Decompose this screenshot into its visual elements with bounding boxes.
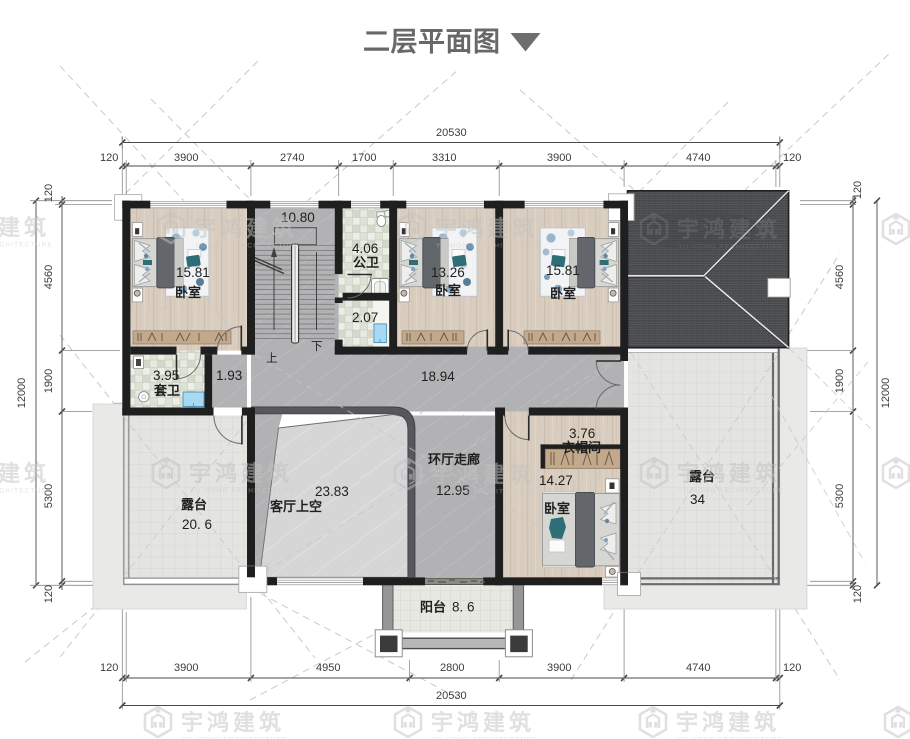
svg-text:2800: 2800 (440, 662, 464, 674)
svg-text:卧室: 卧室 (544, 501, 570, 516)
svg-text:8. 6: 8. 6 (452, 600, 475, 615)
svg-text:20530: 20530 (436, 127, 467, 139)
svg-text:3900: 3900 (174, 662, 198, 674)
svg-text:3900: 3900 (547, 152, 571, 164)
svg-text:露台: 露台 (181, 497, 207, 512)
svg-text:120: 120 (100, 152, 118, 164)
svg-text:2.07: 2.07 (352, 310, 378, 325)
svg-text:120: 120 (852, 181, 864, 199)
svg-text:公卫: 公卫 (353, 255, 379, 270)
svg-text:14.27: 14.27 (539, 473, 573, 488)
svg-text:卧室: 卧室 (175, 285, 201, 300)
svg-text:套卫: 套卫 (153, 383, 180, 398)
svg-text:4560: 4560 (43, 265, 55, 289)
svg-text:12000: 12000 (880, 378, 892, 409)
svg-text:15.81: 15.81 (546, 263, 580, 278)
svg-text:卧室: 卧室 (435, 283, 461, 298)
svg-text:1900: 1900 (43, 369, 55, 393)
svg-text:120: 120 (100, 662, 118, 674)
svg-text:12000: 12000 (16, 378, 28, 409)
svg-text:1.93: 1.93 (216, 368, 242, 383)
svg-text:120: 120 (783, 662, 801, 674)
svg-text:15.81: 15.81 (176, 265, 210, 280)
svg-text:4950: 4950 (316, 662, 340, 674)
svg-text:13.26: 13.26 (431, 265, 465, 280)
svg-text:1700: 1700 (352, 152, 376, 164)
svg-text:4.06: 4.06 (352, 241, 378, 256)
svg-text:5300: 5300 (834, 484, 846, 508)
svg-text:2740: 2740 (280, 152, 304, 164)
svg-text:20. 6: 20. 6 (182, 517, 212, 532)
svg-text:20530: 20530 (436, 690, 467, 702)
svg-text:二层平面图: 二层平面图 (363, 27, 501, 57)
svg-text:客厅上空: 客厅上空 (270, 499, 322, 514)
svg-text:3900: 3900 (174, 152, 198, 164)
svg-text:120: 120 (783, 152, 801, 164)
svg-text:衣帽间: 衣帽间 (562, 440, 601, 455)
svg-text:3310: 3310 (432, 152, 456, 164)
svg-text:4740: 4740 (686, 152, 710, 164)
svg-text:4560: 4560 (834, 265, 846, 289)
svg-text:4740: 4740 (686, 662, 710, 674)
svg-text:3900: 3900 (547, 662, 571, 674)
svg-text:120: 120 (852, 585, 864, 603)
svg-text:卧室: 卧室 (550, 286, 576, 301)
svg-text:120: 120 (43, 585, 55, 603)
svg-text:23.83: 23.83 (315, 484, 349, 499)
svg-text:18.94: 18.94 (421, 369, 455, 384)
svg-text:1900: 1900 (834, 369, 846, 393)
svg-text:3.95: 3.95 (153, 368, 179, 383)
svg-text:阳台: 阳台 (420, 600, 446, 615)
svg-text:120: 120 (43, 184, 55, 202)
svg-text:下: 下 (311, 341, 323, 353)
svg-text:3.76: 3.76 (569, 426, 595, 441)
svg-text:上: 上 (266, 352, 278, 365)
